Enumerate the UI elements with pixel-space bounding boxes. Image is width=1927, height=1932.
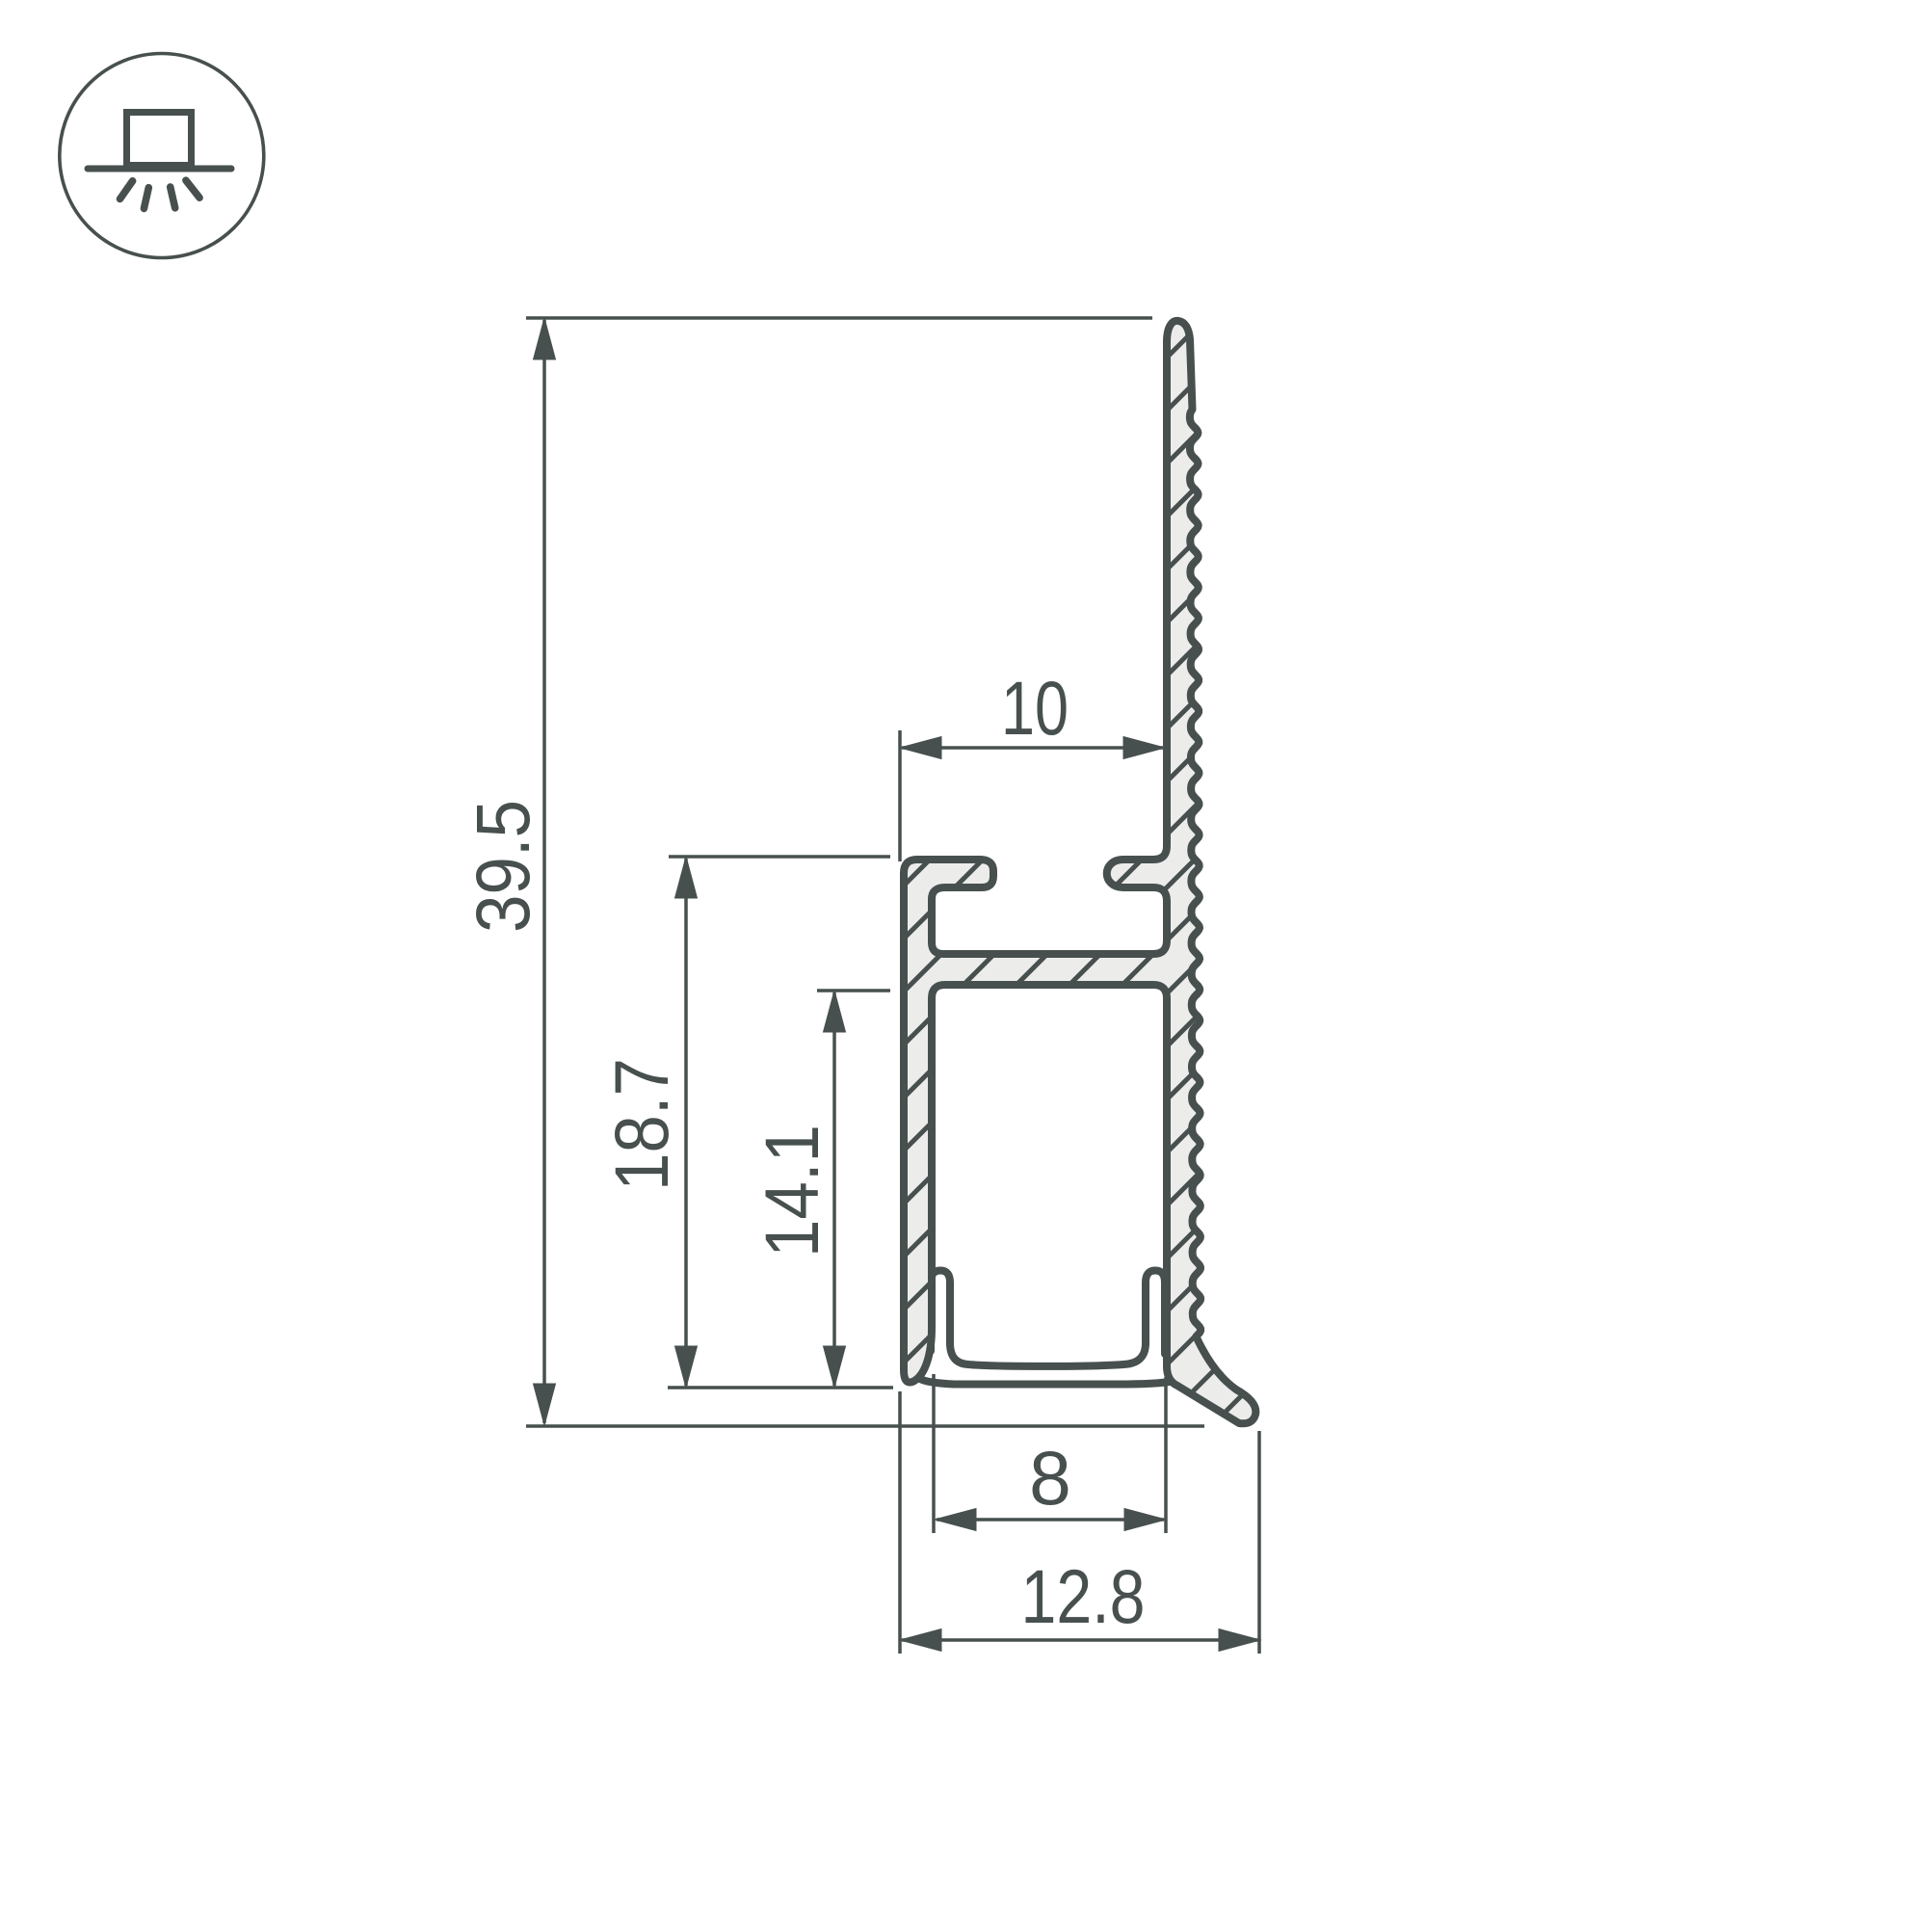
svg-text:14.1: 14.1 [750,1125,834,1257]
svg-text:10: 10 [1001,666,1069,751]
svg-text:8: 8 [1029,1436,1071,1521]
svg-text:12.8: 12.8 [1021,1554,1146,1639]
svg-text:18.7: 18.7 [599,1058,684,1191]
svg-text:39.5: 39.5 [461,800,545,933]
